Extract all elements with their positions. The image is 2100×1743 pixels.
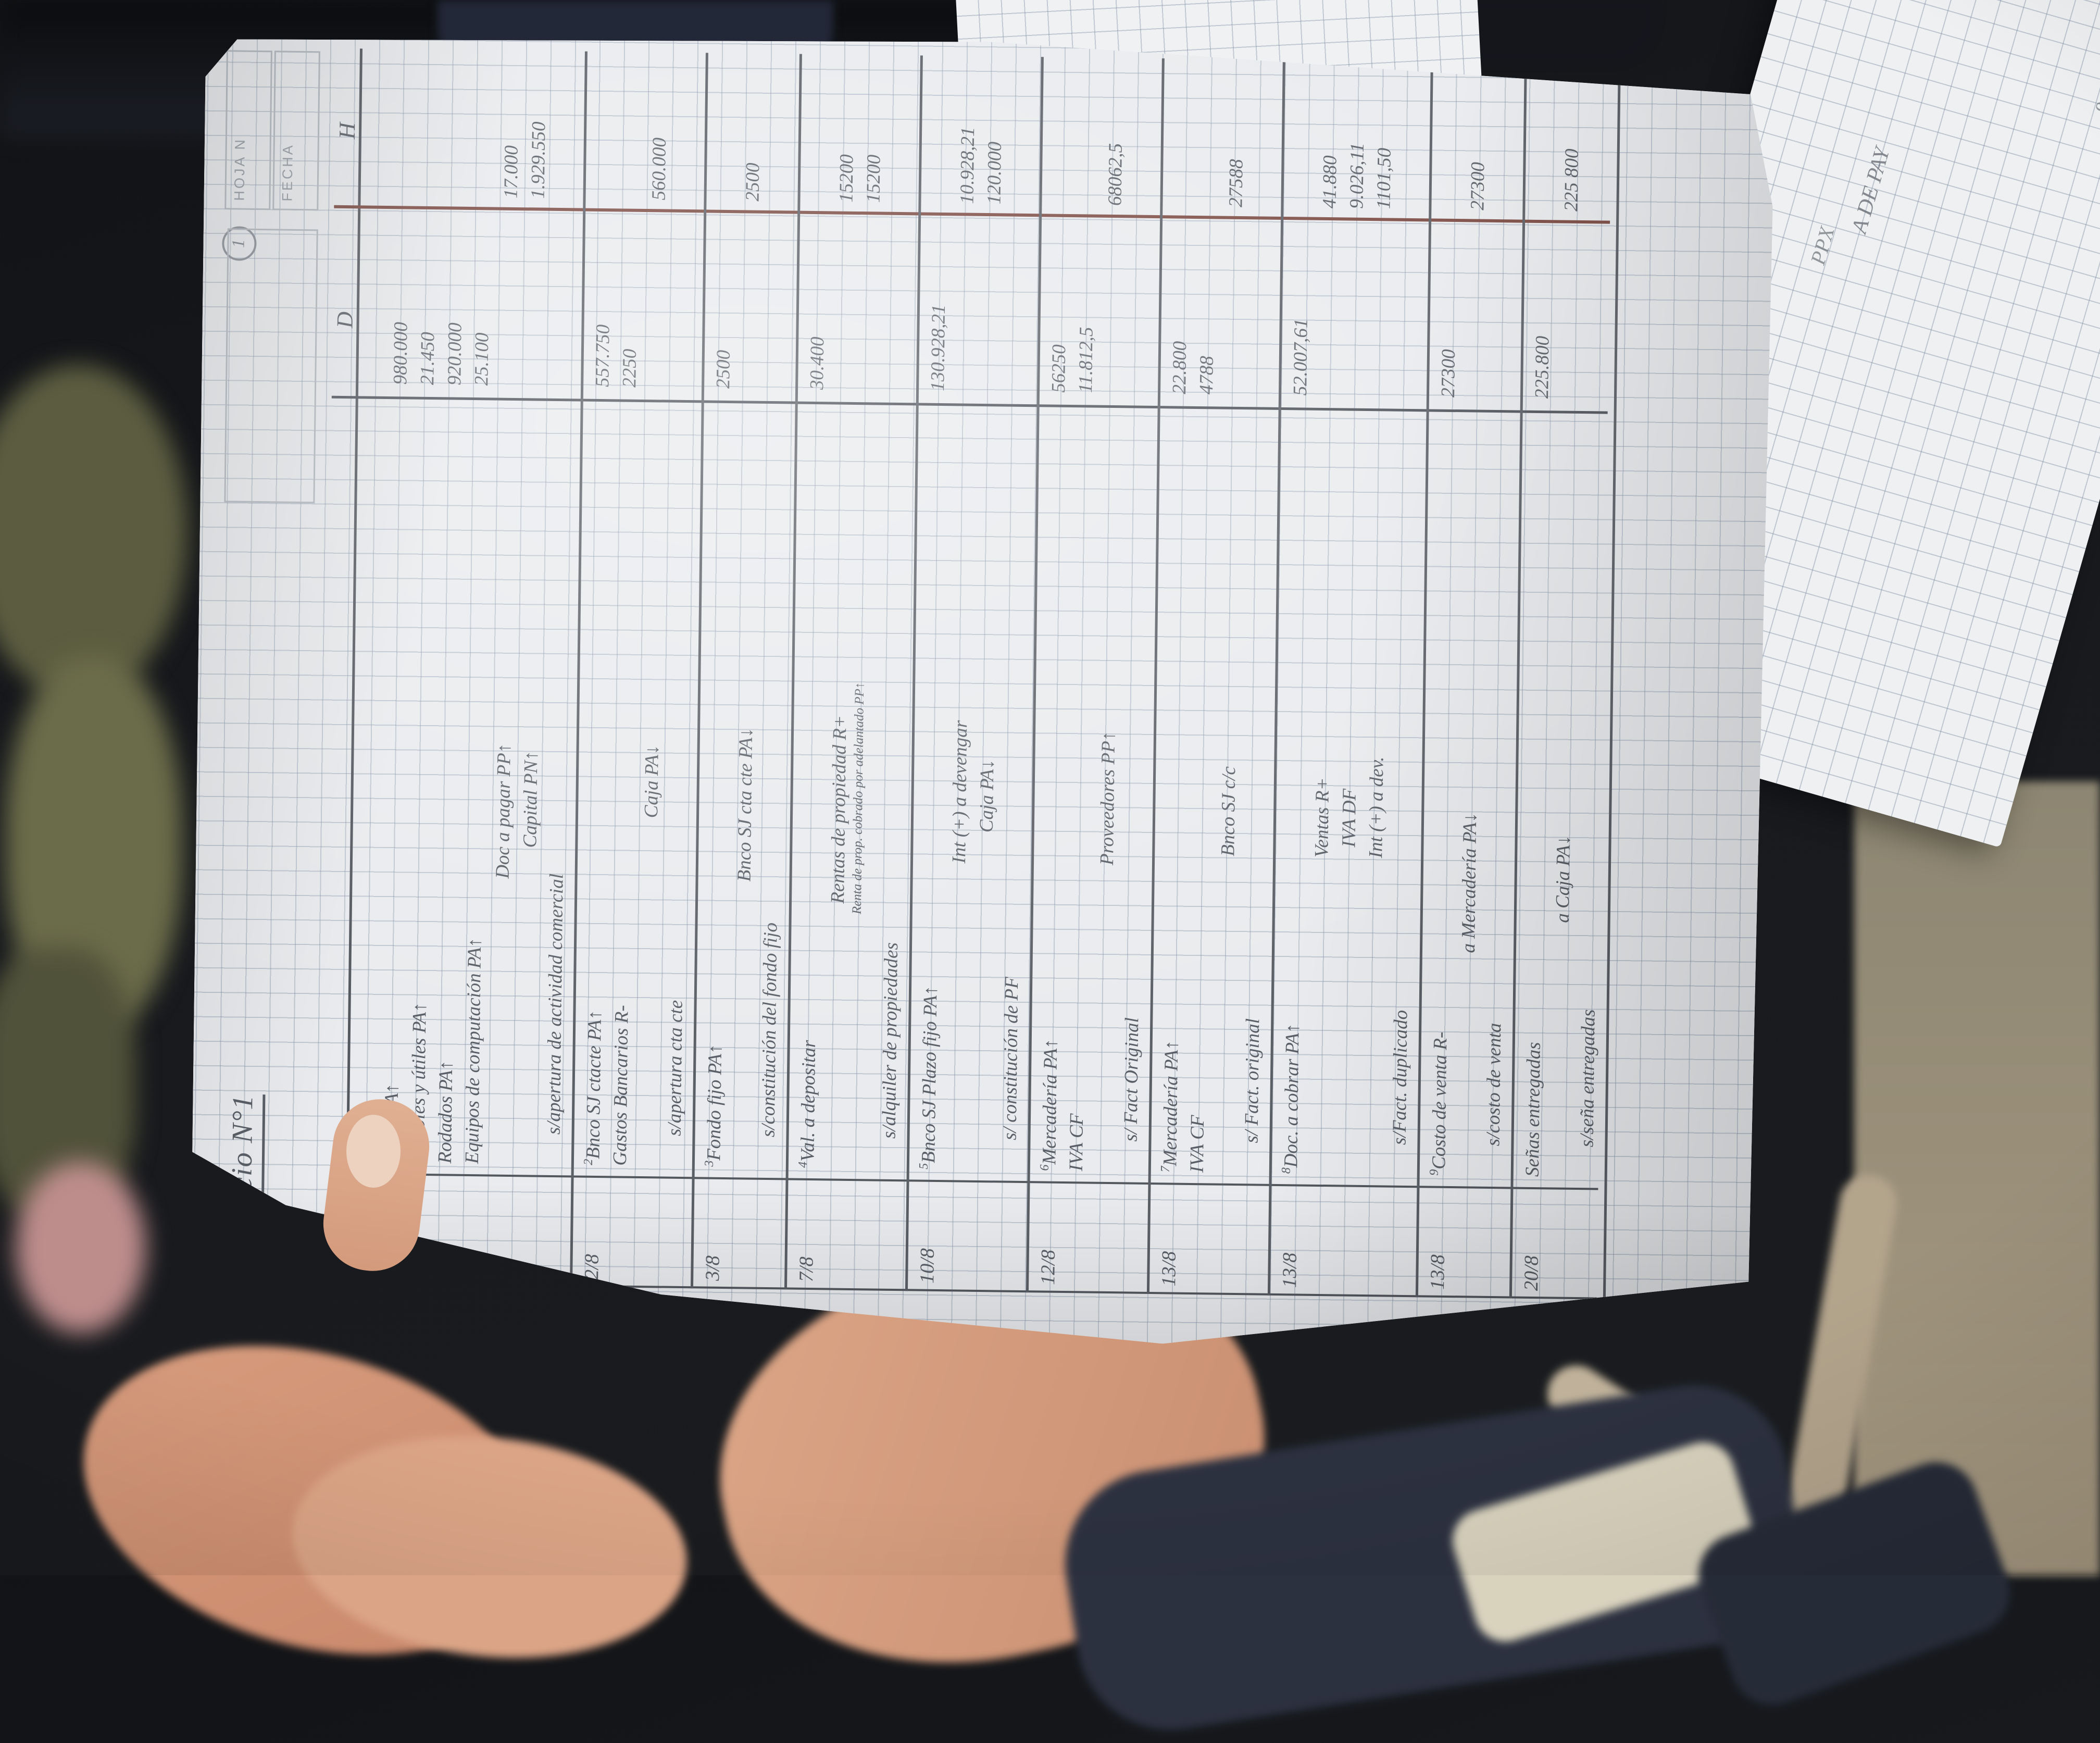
journal-line-credit: a Mercadería PA↓ bbox=[1457, 813, 1481, 953]
journal-line-credit: Caja PA↓ bbox=[640, 745, 664, 818]
journal-line-credit-amount: 10.928,21 bbox=[956, 127, 979, 204]
entry-number: 2 bbox=[582, 1159, 595, 1165]
entry-date: 7/8 bbox=[795, 1256, 818, 1282]
journal-line-debit-amount: 21.450 bbox=[416, 332, 439, 385]
journal-line-memo: s/ Fact Original bbox=[1119, 1017, 1143, 1142]
journal-line-debit-amount: 2500 bbox=[712, 350, 735, 389]
journal-line-credit: Int (+) a dev. bbox=[1365, 756, 1388, 858]
entry-date: 13/8 bbox=[1157, 1251, 1181, 1287]
journal-line-debit-amount: 225.800 bbox=[1531, 336, 1554, 399]
journal-line-credit: Bnco SJ c/c bbox=[1217, 766, 1240, 856]
journal-line-credit: Caja PA↓ bbox=[976, 760, 999, 833]
journal-line-debit-amount: 2250 bbox=[618, 348, 641, 388]
journal-line-debit: 4Val. a depositar bbox=[796, 1040, 820, 1168]
journal-line-credit: Int (+) a devengar bbox=[948, 720, 972, 864]
journal-line-credit-amount: 41.880 bbox=[1318, 155, 1341, 208]
chair-frame bbox=[0, 365, 187, 698]
journal-line-credit-amount: 120.000 bbox=[983, 142, 1006, 205]
journal-line-credit: Proveedores PP↑ bbox=[1096, 731, 1120, 866]
journal-line-debit: IVA CF bbox=[1186, 1115, 1209, 1173]
journal-line-debit-amount: 56250 bbox=[1047, 344, 1070, 393]
journal-line-credit: Capital PN↑ bbox=[519, 751, 542, 848]
journal-line-memo: s/constitución del fondo fijo bbox=[757, 923, 782, 1138]
photo: { "page": { "page_number_circle": "1", "… bbox=[0, 0, 2100, 1575]
journal-line-memo: s/seña entregadas bbox=[1576, 1009, 1599, 1147]
journal-line-credit: Rentas de propiedad R+ bbox=[827, 715, 851, 904]
journal-line-debit-amount: 22.800 bbox=[1168, 341, 1191, 394]
entry-date: 12/8 bbox=[1036, 1250, 1060, 1285]
journal-line-debit-amount: 920.000 bbox=[443, 322, 466, 385]
journal-line-debit-amount: 30.400 bbox=[806, 337, 829, 390]
journal-line-debit: Rodados PA↑ bbox=[434, 1061, 457, 1164]
journal-line-credit-amount: 27588 bbox=[1224, 159, 1247, 207]
entry-date: 13/8 bbox=[1278, 1252, 1302, 1288]
journal-line-memo: s/costo de venta bbox=[1482, 1023, 1506, 1146]
journal-line-debit-amount: 4788 bbox=[1195, 356, 1218, 395]
journal-line-debit: Gastos Bancarios R- bbox=[609, 1005, 633, 1166]
journal-line-debit-amount: 130.928,21 bbox=[927, 304, 950, 391]
background-scribble: 9.000 bbox=[2090, 67, 2100, 116]
entry-number: 4 bbox=[796, 1162, 810, 1168]
journal-line-debit-amount: 980.000 bbox=[389, 322, 412, 385]
nota-label: NOTA bbox=[259, 1276, 276, 1324]
floor bbox=[1854, 781, 2100, 1575]
entry-date: 13/8 bbox=[1426, 1254, 1449, 1290]
journal-line-credit-amount: 27300 bbox=[1466, 162, 1489, 210]
entry-number: 7 bbox=[1159, 1166, 1172, 1172]
journal-line-debit: 3Fondo fijo PA↑ bbox=[703, 1044, 727, 1167]
entry-date: 2/8 bbox=[580, 1254, 604, 1279]
journal-line-credit: Bnco SJ cta cte PA↓ bbox=[733, 728, 758, 882]
entry-date: 20/8 bbox=[1520, 1255, 1543, 1291]
background-object-pink bbox=[16, 1162, 146, 1334]
journal-line-credit: Doc a pagar PP↑ bbox=[492, 743, 516, 879]
journal-line-credit-amount: 17.000 bbox=[500, 145, 523, 198]
journal-line-credit: a Caja PA↓ bbox=[1552, 835, 1575, 923]
journal-line-debit: 2Bnco SJ ctacte PA↑ bbox=[582, 1010, 606, 1165]
journal-line-credit-amount: 68062,5 bbox=[1104, 143, 1127, 206]
entry-number: 6 bbox=[1038, 1164, 1052, 1171]
entry-date: 10/8 bbox=[916, 1248, 939, 1284]
journal-line-memo: s/alquiler de propiedades bbox=[878, 942, 903, 1139]
journal-line-memo: s/apertura cta cte bbox=[664, 1000, 687, 1137]
journal-line-credit-amount: 15200 bbox=[835, 154, 858, 203]
journal-line-debit: IVA CF bbox=[1065, 1113, 1088, 1171]
journal-line-debit: 8Doc. a cobrar PA↑ bbox=[1280, 1023, 1304, 1174]
journal-line-debit: Equipos de computación PA↑ bbox=[461, 938, 486, 1164]
journal-line-credit-amount: 15200 bbox=[862, 155, 885, 203]
entry-number: 5 bbox=[917, 1163, 931, 1169]
entry-number: 8 bbox=[1280, 1167, 1293, 1174]
journal-line-debit-amount: 11.812,5 bbox=[1074, 327, 1098, 393]
thumb-nail bbox=[346, 1115, 401, 1188]
journal-line-debit-amount: 27300 bbox=[1437, 349, 1460, 397]
journal-line-memo: s/Fact. duplicado bbox=[1388, 1010, 1412, 1145]
entry-number: 9 bbox=[1428, 1169, 1441, 1176]
journal-line-credit-amount: 225 800 bbox=[1560, 148, 1583, 211]
journal-line-debit: 5Bnco SJ Plazo fijo PA↑ bbox=[917, 986, 942, 1169]
background-scribble: A DE PAY bbox=[1847, 145, 1895, 236]
journal-line-memo: s/ Fact. original bbox=[1240, 1018, 1264, 1143]
journal-line-credit-amount: 1101,50 bbox=[1372, 148, 1395, 209]
entry-separator bbox=[1603, 64, 1621, 1300]
journal-line-credit-amount: 9.026,11 bbox=[1345, 143, 1369, 209]
journal-line-credit: Ventas R+ bbox=[1310, 777, 1334, 857]
entry-date: 3/8 bbox=[701, 1255, 724, 1281]
journal-line-debit: Señas entregadas bbox=[1521, 1042, 1545, 1177]
journal-line-debit-amount: 25.100 bbox=[470, 332, 493, 385]
entry-number: 3 bbox=[703, 1161, 716, 1167]
journal-line-credit: IVA DF bbox=[1337, 789, 1360, 848]
journal-line-memo: s/ constitución de PF bbox=[999, 977, 1023, 1140]
journal-line-debit: 7Mercadería PA↑ bbox=[1159, 1040, 1183, 1173]
journal-line-debit-amount: 557.750 bbox=[591, 325, 614, 388]
journal-line-credit-amount: 1.929.550 bbox=[527, 121, 551, 199]
background-scribble: PPX bbox=[1805, 224, 1839, 267]
journal-line-debit: 6Mercadería PA↑ bbox=[1038, 1039, 1062, 1171]
journal-line-credit-amount: 2500 bbox=[741, 163, 764, 202]
journal-line-memo: s/apertura de actividad comercial bbox=[543, 874, 568, 1135]
journal-line-debit: 9Costo de venta R- bbox=[1428, 1031, 1452, 1176]
journal-line-credit-amount: 560.000 bbox=[647, 138, 670, 201]
journal-line-credit: Renta de prop. cobrado por adelantado PP… bbox=[851, 622, 868, 914]
journal-line-debit-amount: 52.007,61 bbox=[1289, 318, 1312, 396]
